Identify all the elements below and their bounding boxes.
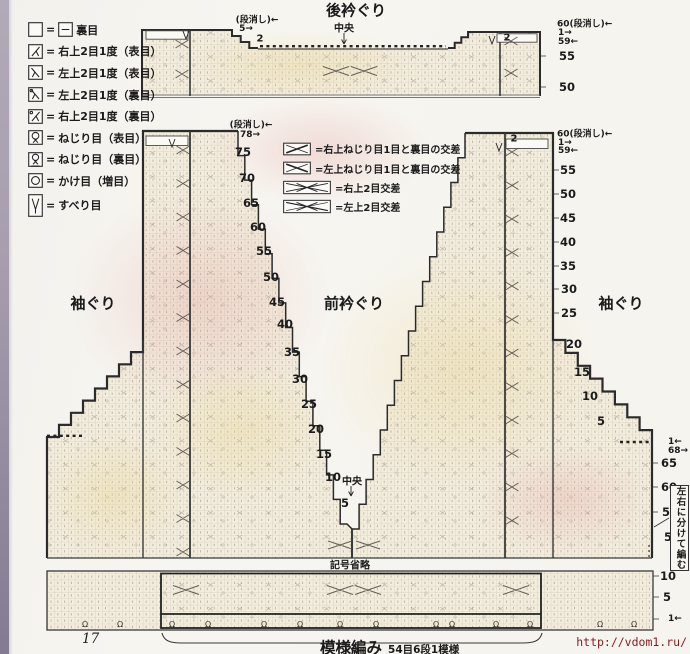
twisted-stitch-mark: Ω bbox=[205, 620, 211, 629]
legend-row: =かけ目（増目） bbox=[28, 170, 162, 192]
chart-label: 中央 bbox=[334, 20, 354, 35]
chart-label: 中央 bbox=[342, 473, 362, 488]
equals-sign: = bbox=[46, 199, 55, 212]
chart-label: 35 bbox=[560, 259, 576, 273]
chart-label: 20 bbox=[566, 337, 582, 351]
stitch-legend: =裏目=右上2目1度（表目）=左上2目1度（表目）=左上2目1度（裏目）=右上2… bbox=[28, 19, 162, 219]
chart-label: 記号省略 bbox=[330, 557, 370, 572]
pattern-caption-sub: 54目6段1模様 bbox=[388, 642, 459, 654]
twisted-stitch-mark: Ω bbox=[169, 620, 175, 629]
chart-label: 45 bbox=[269, 295, 285, 309]
legend-label: 右上2目1度（表目） bbox=[58, 43, 161, 59]
legend-row: =左上2目1度（裏目） bbox=[28, 84, 162, 106]
equals-sign: = bbox=[46, 131, 55, 144]
chart-label: 5 bbox=[341, 496, 349, 510]
chart-label: 60 bbox=[250, 220, 266, 234]
twp-stitch-symbol-icon bbox=[28, 152, 43, 167]
chart-label: 55 bbox=[256, 244, 272, 258]
pattern-caption: 模様編み 54目6段1模様 bbox=[320, 636, 459, 654]
twisted-stitch-mark: Ω bbox=[82, 620, 88, 629]
side-note-connector bbox=[654, 518, 669, 527]
chart-label: 59← bbox=[558, 146, 578, 156]
chart-label: 2 bbox=[511, 134, 518, 145]
chart-label: 45 bbox=[560, 211, 576, 225]
twisted-stitch-mark: Ω bbox=[433, 620, 439, 629]
dash-stitch-symbol-icon bbox=[58, 22, 73, 37]
legend-label: 左上2目1度（裏目） bbox=[58, 87, 161, 103]
chart-label: 15 bbox=[316, 447, 332, 461]
chart-label: 後衿ぐり bbox=[326, 0, 386, 21]
legend-label: 右上2目1度（裏目） bbox=[58, 108, 161, 124]
bottom-band bbox=[47, 571, 653, 630]
twisted-stitch-mark: Ω bbox=[597, 620, 603, 629]
p2r-stitch-symbol-icon bbox=[28, 109, 43, 124]
chart-label: 25 bbox=[301, 397, 317, 411]
cable-legend: =右上ねじり目1目と裏目の交差=左上ねじり目1目と裏目の交差=右上2目交差=左上… bbox=[283, 139, 460, 217]
legend-row: =右上2目1度（裏目） bbox=[28, 105, 162, 127]
page-edge-strip bbox=[0, 0, 9, 654]
blank-stitch-symbol-icon bbox=[28, 22, 43, 37]
cable-legend-label: =右上2目交差 bbox=[335, 180, 400, 195]
equals-sign: = bbox=[46, 88, 55, 101]
chart-label: 65 bbox=[661, 456, 677, 470]
legend-row: =裏目 bbox=[28, 19, 162, 41]
twisted-stitch-mark: Ω bbox=[117, 620, 123, 629]
cable-legend-row: =右上ねじり目1目と裏目の交差 bbox=[283, 139, 460, 158]
twisted-stitch-mark: Ω bbox=[527, 620, 533, 629]
equals-sign: = bbox=[46, 23, 55, 36]
chart-label: 袖ぐり bbox=[598, 293, 643, 314]
chart-label: 5 bbox=[663, 590, 671, 604]
legend-row: =ねじり目（表目） bbox=[28, 127, 162, 149]
band-stitches bbox=[161, 574, 541, 629]
twisted-stitch-mark: Ω bbox=[297, 620, 303, 629]
chart-label: 20 bbox=[308, 422, 324, 436]
pattern-caption-main: 模様編み bbox=[320, 636, 382, 654]
cable-legend-label: =左上ねじり目1目と裏目の交差 bbox=[315, 161, 460, 176]
chart-label: 55 bbox=[560, 163, 576, 177]
chart-label: 10 bbox=[660, 569, 676, 583]
scanned-knitting-pattern-page: ΩΩΩΩΩΩΩΩΩΩΩΩΩΩ =裏目=右上2目1度（表目）=左上2目1度（表目）… bbox=[0, 0, 690, 654]
chart-label: 55 bbox=[559, 49, 575, 63]
chart-label: 50 bbox=[263, 270, 279, 284]
c2r-cable-symbol-icon bbox=[283, 180, 331, 195]
chart-label: 40 bbox=[560, 235, 576, 249]
k2l-stitch-symbol-icon bbox=[28, 65, 43, 80]
chart-label: 35 bbox=[284, 345, 300, 359]
cable-legend-row: =左上ねじり目1目と裏目の交差 bbox=[283, 158, 460, 177]
chart-label: 5→ bbox=[239, 24, 253, 34]
chart-label: 前衿ぐり bbox=[324, 293, 384, 314]
legend-label: すべり目 bbox=[58, 197, 101, 213]
c2l-cable-symbol-icon bbox=[283, 199, 331, 214]
chart-label: 50 bbox=[560, 187, 576, 201]
chart-label: 1← bbox=[668, 614, 682, 624]
k2r-stitch-symbol-icon bbox=[28, 44, 43, 59]
legend-row: =右上2目1度（表目） bbox=[28, 41, 162, 63]
chart-label: 15 bbox=[574, 365, 590, 379]
legend-label: ねじり目（表目） bbox=[58, 130, 146, 146]
legend-row: =すべり目 bbox=[28, 192, 162, 219]
twisted-stitch-mark: Ω bbox=[449, 620, 455, 629]
twisted-stitch-mark: Ω bbox=[493, 620, 499, 629]
equals-sign: = bbox=[46, 45, 55, 58]
chart-label: 2 bbox=[257, 34, 264, 45]
equals-sign: = bbox=[46, 66, 55, 79]
cable-legend-row: =左上2目交差 bbox=[283, 197, 460, 216]
tw-stitch-symbol-icon bbox=[28, 130, 43, 145]
slip-stitch-symbol-icon bbox=[28, 194, 43, 217]
legend-label: 左上2目1度（表目） bbox=[58, 65, 161, 81]
legend-label: 裏目 bbox=[76, 22, 98, 38]
chart-label: 25 bbox=[561, 306, 577, 320]
chart-label: 50 bbox=[559, 80, 575, 94]
chart-label: 65 bbox=[243, 196, 259, 210]
twisted-stitch-mark: Ω bbox=[373, 620, 379, 629]
twisted-stitch-mark: Ω bbox=[631, 620, 637, 629]
equals-sign: = bbox=[46, 174, 55, 187]
equals-sign: = bbox=[46, 153, 55, 166]
tcr-cable-symbol-icon bbox=[283, 142, 311, 156]
chart-label: (段消し)← bbox=[230, 118, 273, 131]
p2l-stitch-symbol-icon bbox=[28, 87, 43, 102]
equals-sign: = bbox=[46, 110, 55, 123]
chart-label: 10 bbox=[582, 389, 598, 403]
yo-stitch-symbol-icon bbox=[28, 173, 43, 188]
chart-label: 2 bbox=[504, 33, 511, 44]
cable-legend-label: =右上ねじり目1目と裏目の交差 bbox=[315, 141, 460, 156]
chart-label: 30 bbox=[561, 282, 577, 296]
chart-label: 59← bbox=[558, 37, 578, 47]
chart-label: 袖ぐり bbox=[70, 293, 115, 314]
chart-label: 5 bbox=[597, 414, 605, 428]
watermark-url: http://vdom1.ru/ bbox=[576, 635, 687, 649]
chart-label: 75 bbox=[235, 145, 251, 159]
legend-label: ねじり目（裏目） bbox=[58, 151, 146, 167]
chart-label: 10 bbox=[325, 470, 341, 484]
chart-label: 40 bbox=[277, 317, 293, 331]
tcl-cable-symbol-icon bbox=[283, 161, 311, 175]
chart-label: 70 bbox=[239, 171, 255, 185]
twisted-stitch-mark: Ω bbox=[261, 620, 267, 629]
page-edge-shadow bbox=[9, 0, 13, 654]
legend-label: かけ目（増目） bbox=[58, 173, 135, 189]
cable-legend-label: =左上2目交差 bbox=[335, 199, 400, 214]
chart-label: 30 bbox=[292, 372, 308, 386]
chart-label: 78→ bbox=[240, 130, 260, 140]
legend-row: =ねじり目（裏目） bbox=[28, 149, 162, 171]
side-note-vertical: 左右に分けて編む bbox=[670, 485, 689, 571]
cable-legend-row: =右上2目交差 bbox=[283, 178, 460, 197]
page-number: 17 bbox=[82, 631, 99, 647]
chart-label: 68→ bbox=[668, 446, 688, 456]
legend-row: =左上2目1度（表目） bbox=[28, 62, 162, 84]
twisted-stitch-mark: Ω bbox=[337, 620, 343, 629]
